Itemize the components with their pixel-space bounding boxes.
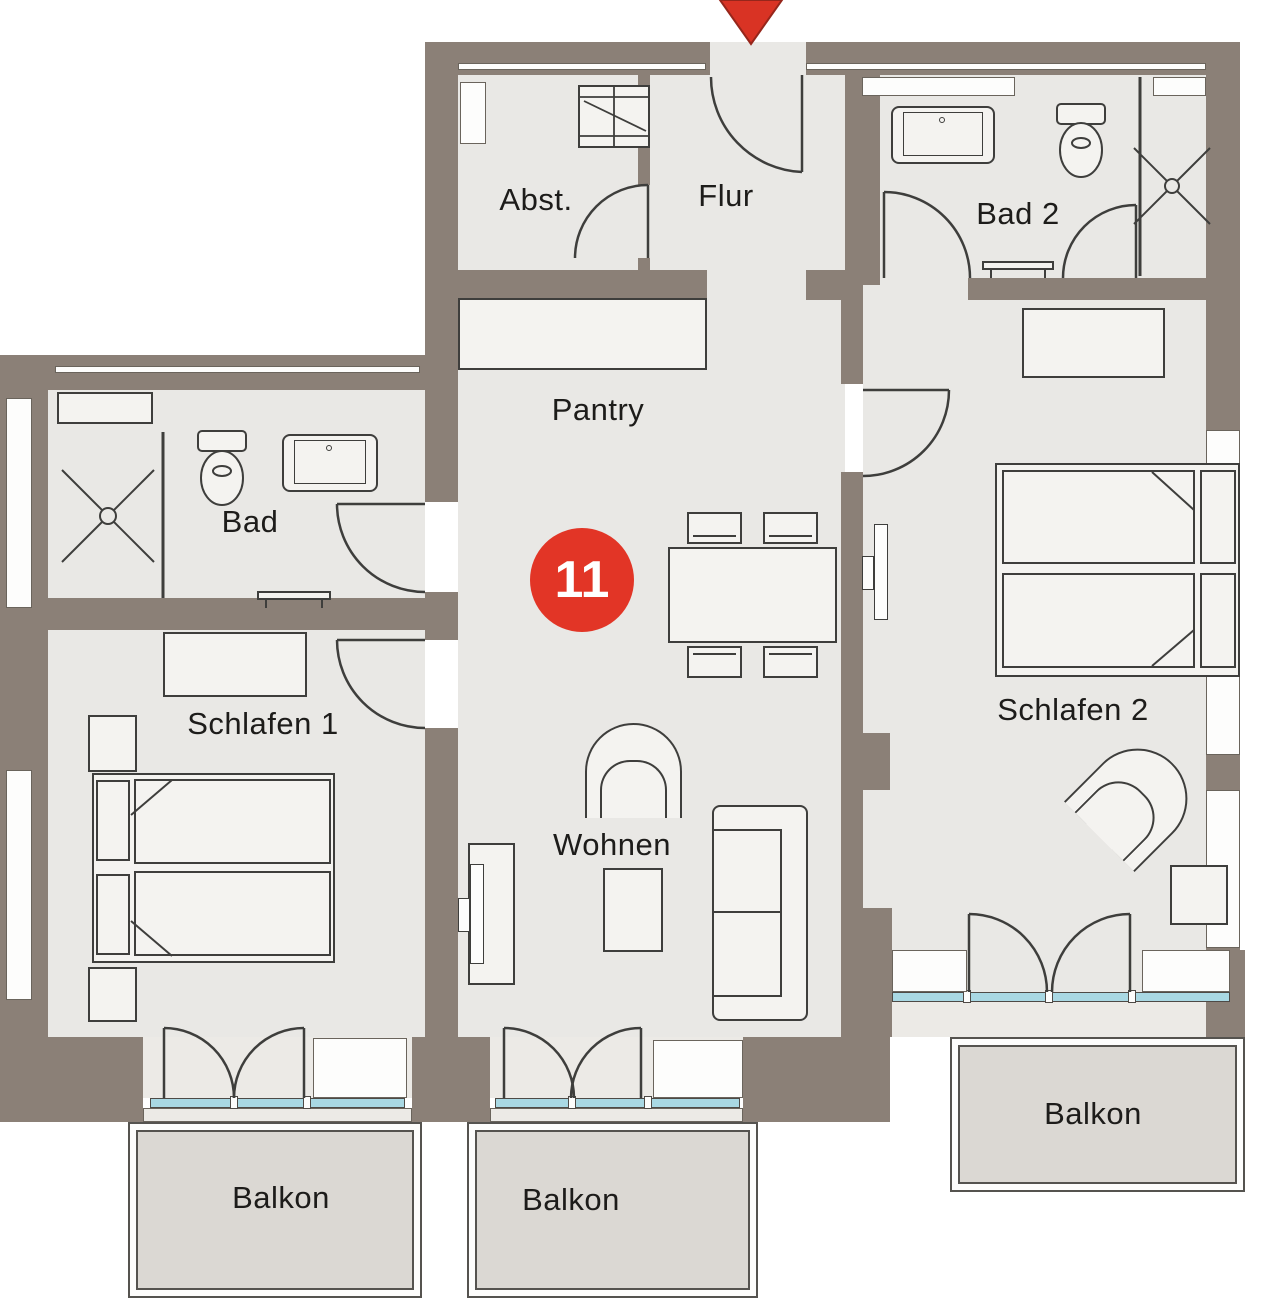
wall-right-outer-upper	[1206, 75, 1240, 430]
wall-schlafen2-top	[968, 278, 1206, 300]
dining-chair	[763, 512, 818, 544]
wall-bad-bottom	[48, 598, 458, 630]
room-label-wohnen: Wohnen	[553, 827, 671, 863]
schlafen1-pillow-1	[96, 780, 130, 861]
dining-chair	[687, 512, 742, 544]
wohnen-tv-mount	[458, 898, 470, 932]
fixed-window-balkon2	[653, 1040, 743, 1098]
wall-mid-left-lower	[425, 728, 458, 1037]
mullion	[1045, 990, 1053, 1003]
schlafen2-tv	[874, 524, 888, 620]
unit-number-badge: 11	[530, 528, 634, 632]
mullion	[230, 1096, 238, 1109]
window-strip-bad-top	[55, 366, 420, 373]
room-label-bad: Bad	[222, 504, 279, 540]
wall-top-left	[425, 42, 710, 75]
schlafen2-side-table	[1170, 865, 1228, 925]
schlafen1-nightstand-top	[88, 715, 137, 772]
wall-pier-balkon1-balkon2	[412, 1037, 490, 1122]
room-label-balkon3: Balkon	[1044, 1096, 1142, 1132]
entrance-opening	[710, 42, 806, 75]
wohnen-sofa-seat	[712, 829, 782, 997]
schlafen2-mattress-1	[1002, 470, 1195, 564]
sill-balkon-1	[143, 1108, 412, 1122]
dining-chair	[763, 646, 818, 678]
glazing-balkon-3	[892, 992, 1230, 1002]
window-left-bad	[6, 398, 32, 608]
room-label-bad2: Bad 2	[976, 196, 1060, 232]
wall-abst-bottom	[425, 270, 707, 300]
armchair-seat	[600, 760, 667, 818]
unit-number: 11	[555, 550, 610, 610]
bad1-sink-drain	[326, 445, 332, 451]
room-label-balkon2: Balkon	[522, 1182, 620, 1218]
schlafen1-mattress-2	[134, 871, 331, 956]
room-label-balkon1: Balkon	[232, 1180, 330, 1216]
wall-schlafen2-bay-right-pier	[1230, 950, 1245, 1037]
mullion	[1128, 990, 1136, 1003]
niche-abst	[460, 82, 486, 144]
wall-abst-flur-divider-lower	[638, 258, 650, 270]
wall-hall-stub	[806, 270, 863, 300]
schlafen2-mattress-2	[1002, 573, 1195, 668]
mullion	[644, 1096, 652, 1109]
dining-table	[668, 547, 837, 643]
schlafen1-dresser	[163, 632, 307, 697]
window-strip-top-right	[806, 63, 1206, 70]
wohnen-armchair	[585, 723, 682, 818]
schlafen2-dresser	[1022, 308, 1165, 378]
abst-wardrobe	[578, 85, 650, 148]
window-left-schlafen1	[6, 770, 32, 1000]
threshold-balkon-3	[892, 1002, 1230, 1037]
window-strip-top-left	[458, 63, 706, 70]
glazing-balkon-1	[150, 1098, 405, 1108]
entrance-arrow	[720, 0, 782, 44]
niche-bad2-right	[1153, 77, 1206, 96]
wall-bottom-wohnen-right	[743, 1037, 890, 1122]
room-label-pantry: Pantry	[552, 392, 645, 428]
wall-hall-schlafen2-lower	[841, 472, 863, 1037]
schlafen1-nightstand-bottom	[88, 967, 137, 1022]
schlafen1-pillow-2	[96, 874, 130, 955]
kitchen-counter	[458, 298, 707, 370]
mullion	[568, 1096, 576, 1109]
floor-top-section	[458, 62, 1206, 300]
room-label-schlafen2: Schlafen 2	[997, 692, 1149, 728]
wohnen-tv	[470, 864, 484, 964]
bad1-washer	[57, 392, 153, 424]
sill-balkon-2	[490, 1108, 743, 1122]
bad2-sink-drain	[939, 117, 945, 123]
niche-bad2-left	[862, 77, 1015, 96]
mullion	[303, 1096, 311, 1109]
schlafen2-tv-mount	[862, 556, 874, 590]
wall-hall-schlafen2-upper	[841, 300, 863, 384]
wohnen-sofa-divider	[714, 911, 780, 913]
room-label-flur: Flur	[698, 178, 753, 214]
wall-schlafen2-bay-left-pier	[863, 908, 892, 1037]
glazing-balkon-2	[495, 1098, 740, 1108]
fixed-window-balkon1	[313, 1038, 407, 1098]
room-label-schlafen1: Schlafen 1	[187, 706, 339, 742]
wall-bottom-left	[0, 1037, 143, 1122]
wall-right-outer-mid	[1206, 755, 1240, 790]
fixed-window-schlafen2-right	[1142, 950, 1230, 992]
room-label-abst: Abst.	[499, 182, 572, 218]
schlafen1-mattress-1	[134, 779, 331, 864]
schlafen2-pillow-2	[1200, 573, 1236, 668]
schlafen2-pillow-1	[1200, 470, 1236, 564]
dining-chair	[687, 646, 742, 678]
fixed-window-schlafen2-left	[892, 950, 967, 992]
floor-plan: Abst. Flur Bad 2 Pantry Bad Schlafen 1 W…	[0, 0, 1280, 1301]
wohnen-coffee-table	[603, 868, 663, 952]
wall-pier-schlafen2	[863, 733, 890, 790]
